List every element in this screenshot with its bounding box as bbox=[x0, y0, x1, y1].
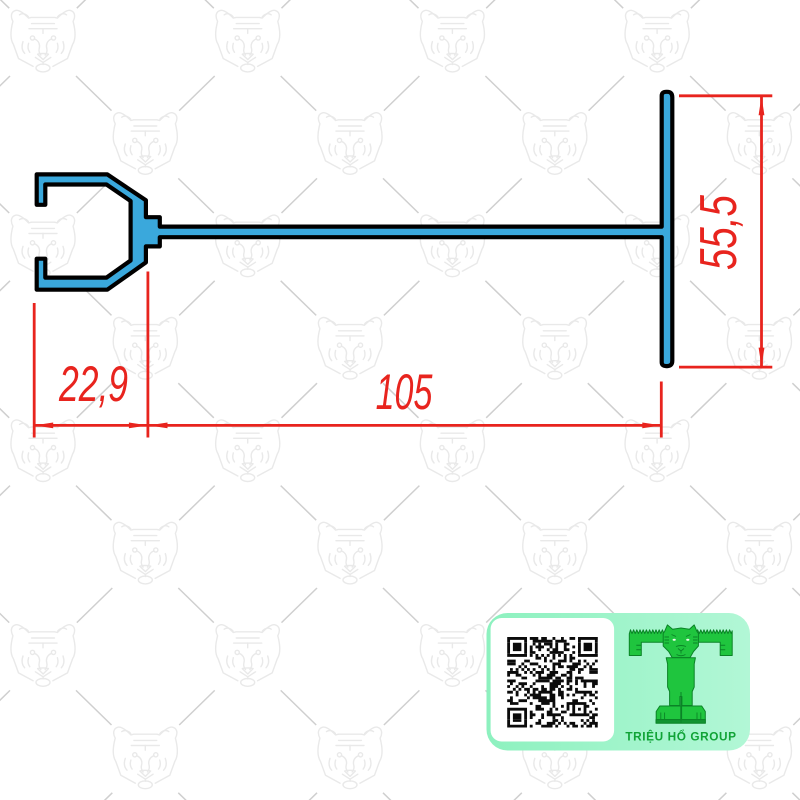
svg-text:TRIỆU HỔ GROUP: TRIỆU HỔ GROUP bbox=[625, 730, 736, 744]
svg-text:105: 105 bbox=[376, 364, 433, 420]
svg-text:22,9: 22,9 bbox=[58, 357, 128, 412]
svg-text:55,5: 55,5 bbox=[689, 195, 747, 270]
